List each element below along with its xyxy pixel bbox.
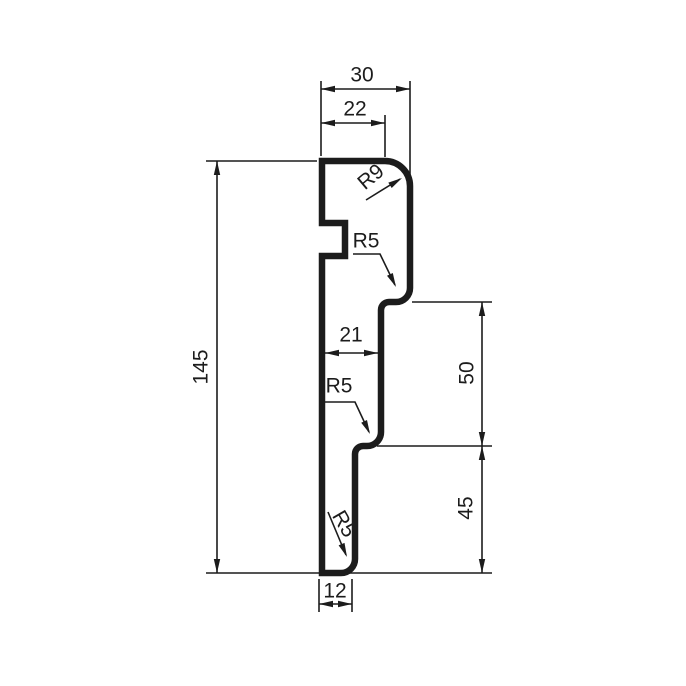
arrowhead-down [479,432,485,446]
dimension-text-21: 21 [339,324,362,347]
dimension-text-12: 12 [323,580,346,603]
dimension-height-45: 45 [455,446,486,573]
arrowhead-right [371,120,385,126]
arrowhead-down [214,559,220,573]
molding-profile-outline [322,161,410,573]
radius-callout-r5-step2: R5 [323,375,370,435]
dimension-width-12: 12 [319,579,352,612]
dimension-text-50: 50 [456,361,479,384]
arrowhead-up [479,446,485,460]
leader-line [353,254,395,285]
dimension-width-21: 21 [325,324,378,357]
arrowhead-up [479,302,485,316]
profile-drawing: 145 30 22 21 [0,0,686,686]
arrowhead-left [325,350,339,356]
arrowhead-right [364,350,378,356]
radius-text-r5: R5 [353,230,380,253]
arrowhead-left [321,86,335,92]
arrowhead-left [321,120,335,126]
dimension-text-30: 30 [350,64,373,87]
leader-line [323,402,369,432]
dimension-height-50: 50 [377,302,492,446]
dimension-text-22: 22 [343,98,366,121]
arrowhead-right [396,86,410,92]
arrowhead-up [214,161,220,175]
arrowhead-down [479,559,485,573]
arrowhead [387,273,396,287]
technical-drawing-canvas: 145 30 22 21 [0,0,686,686]
dimension-text-145: 145 [190,349,213,384]
arrowhead [339,543,347,557]
dimension-width-22: 22 [321,98,385,158]
dimension-text-45: 45 [455,496,478,519]
arrowhead [361,420,370,434]
arrowhead [388,178,402,188]
radius-callout-r5-step1: R5 [353,230,396,288]
radius-text-r5: R5 [326,375,353,398]
